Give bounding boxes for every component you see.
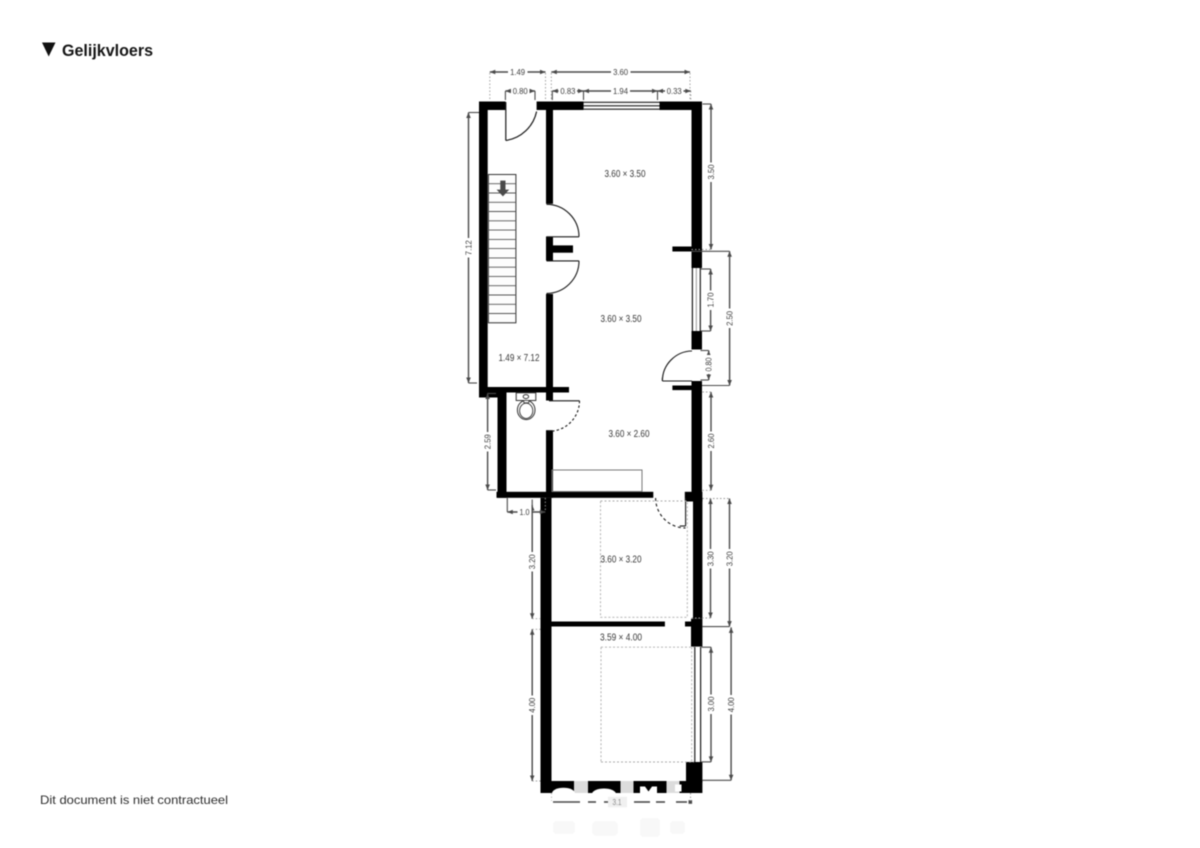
svg-text:0.80: 0.80	[704, 357, 714, 371]
svg-text:0.80: 0.80	[513, 86, 528, 96]
svg-text:2.50: 2.50	[724, 311, 734, 326]
svg-text:Gelijkvloers: Gelijkvloers	[62, 41, 153, 60]
svg-text:3.60 × 2.60: 3.60 × 2.60	[609, 429, 650, 440]
svg-text:0.83: 0.83	[560, 86, 575, 96]
svg-text:7.12: 7.12	[463, 240, 473, 255]
svg-text:2.60: 2.60	[706, 433, 716, 448]
svg-text:1.49 × 7.12: 1.49 × 7.12	[499, 353, 540, 364]
svg-text:3.30: 3.30	[705, 551, 715, 566]
svg-text:1.49: 1.49	[510, 67, 525, 77]
svg-text:3.20: 3.20	[527, 554, 537, 569]
svg-text:4.00: 4.00	[726, 697, 736, 712]
svg-text:1.0: 1.0	[520, 507, 530, 517]
svg-text:0.33: 0.33	[667, 86, 682, 96]
svg-text:1.70: 1.70	[705, 292, 715, 307]
svg-text:3.60: 3.60	[613, 67, 628, 77]
svg-text:3.60 × 3.20: 3.60 × 3.20	[601, 555, 642, 566]
svg-text:3.60 × 3.50: 3.60 × 3.50	[605, 169, 646, 180]
svg-text:3.00: 3.00	[706, 696, 716, 711]
svg-text:2.59: 2.59	[482, 434, 492, 449]
svg-text:3.59 × 4.00: 3.59 × 4.00	[600, 633, 642, 644]
svg-text:3.1: 3.1	[613, 797, 622, 807]
svg-text:Dit document is niet contractu: Dit document is niet contractueel	[40, 793, 228, 807]
svg-text:1.94: 1.94	[613, 86, 628, 96]
svg-text:4.00: 4.00	[527, 697, 537, 712]
svg-text:3.50: 3.50	[706, 164, 716, 179]
svg-text:3.20: 3.20	[724, 551, 734, 566]
svg-text:3.60 × 3.50: 3.60 × 3.50	[601, 314, 642, 325]
